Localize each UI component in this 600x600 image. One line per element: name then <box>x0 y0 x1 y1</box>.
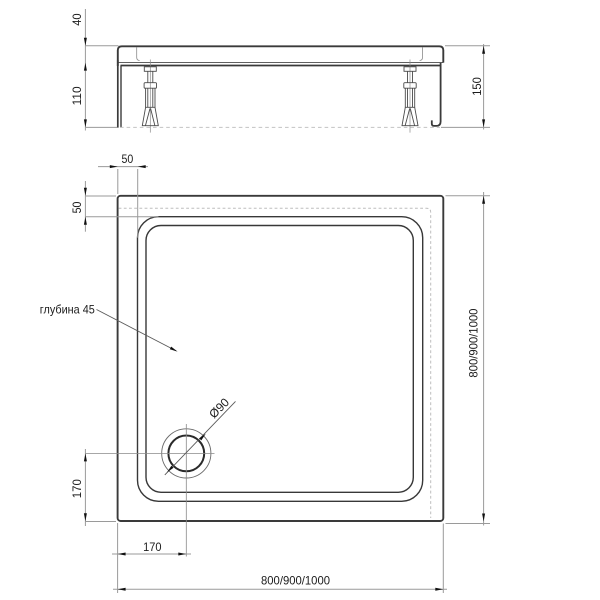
svg-text:110: 110 <box>70 86 84 105</box>
svg-text:800/900/1000: 800/900/1000 <box>466 308 480 377</box>
svg-text:150: 150 <box>470 77 484 96</box>
svg-text:Ø90: Ø90 <box>206 395 232 421</box>
svg-text:170: 170 <box>143 540 162 554</box>
svg-text:800/900/1000: 800/900/1000 <box>261 573 330 587</box>
svg-text:170: 170 <box>70 479 84 498</box>
svg-text:50: 50 <box>122 152 134 166</box>
svg-text:глубина 45: глубина 45 <box>40 302 95 316</box>
svg-text:50: 50 <box>70 201 84 213</box>
svg-text:40: 40 <box>70 13 84 26</box>
